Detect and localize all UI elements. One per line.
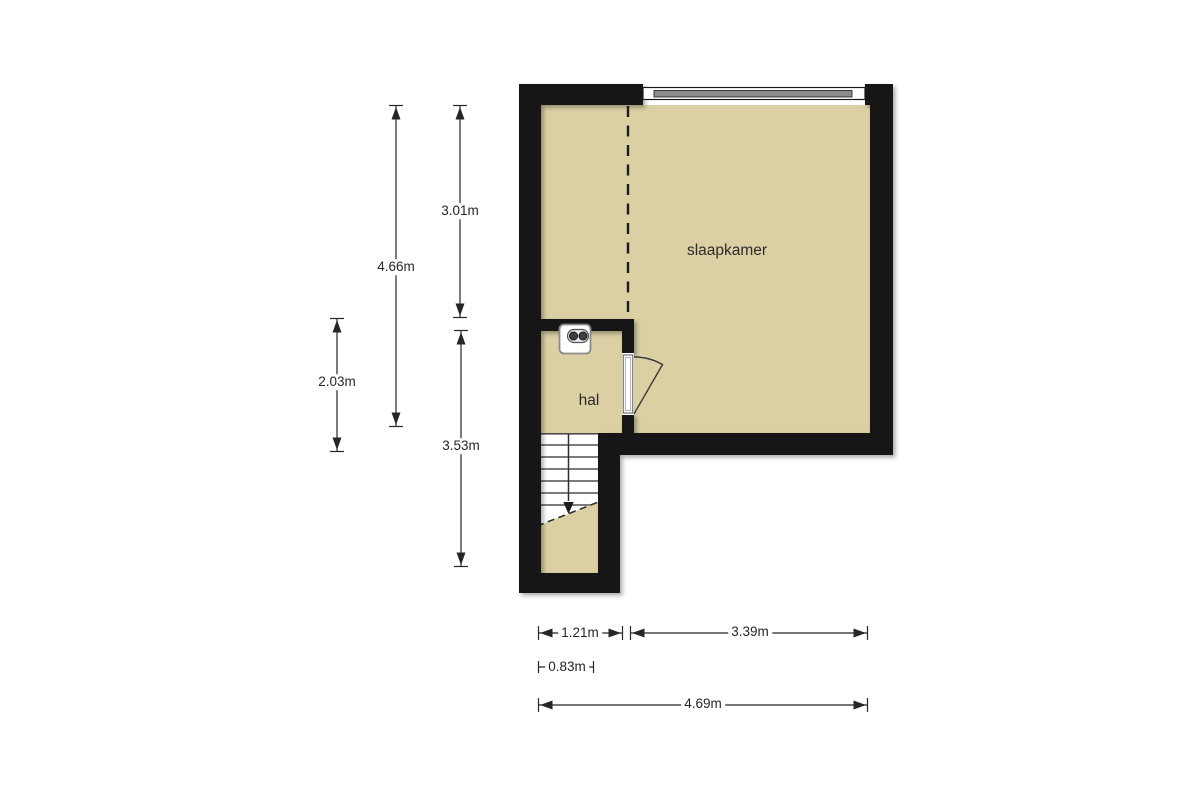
floorplan-canvas: slaapkamer hal 4.66m 3.01m 2.03m 3.53m 1… — [0, 0, 1200, 800]
dim-label-hal-height: 2.03m — [315, 374, 359, 390]
wall-right — [870, 84, 893, 455]
door-leaf — [623, 355, 633, 413]
window-glass — [654, 91, 852, 98]
wall-bottom — [519, 573, 620, 593]
dim-label-stairwell-width: 1.21m — [558, 625, 602, 641]
wall-left — [519, 84, 541, 593]
dim-label-lower-inner-height: 3.53m — [439, 438, 483, 454]
fixture-dot-right — [579, 332, 587, 340]
wall-top-left — [519, 84, 643, 105]
wall-stairwell-right — [598, 433, 620, 573]
floorplan-drawing — [0, 0, 1200, 800]
bedroom-floor — [540, 105, 870, 433]
wall-door-jamb-upper — [622, 319, 634, 354]
dim-label-upper-inner-height: 3.01m — [438, 203, 482, 219]
dim-label-stair-inner-width: 0.83m — [545, 659, 589, 675]
dim-label-bedroom-width: 3.39m — [728, 624, 772, 640]
window-icon — [643, 88, 865, 100]
room-label-hal: hal — [579, 392, 600, 410]
wall-bedroom-bottom — [598, 433, 893, 455]
wall-outlet-fixture-icon — [560, 325, 591, 354]
room-label-slaapkamer: slaapkamer — [687, 242, 767, 260]
fixture-dot-left — [570, 332, 578, 340]
dim-label-left-outer-height: 4.66m — [374, 259, 418, 275]
dim-label-total-width: 4.69m — [681, 696, 725, 712]
wall-door-jamb-lower — [622, 414, 634, 455]
